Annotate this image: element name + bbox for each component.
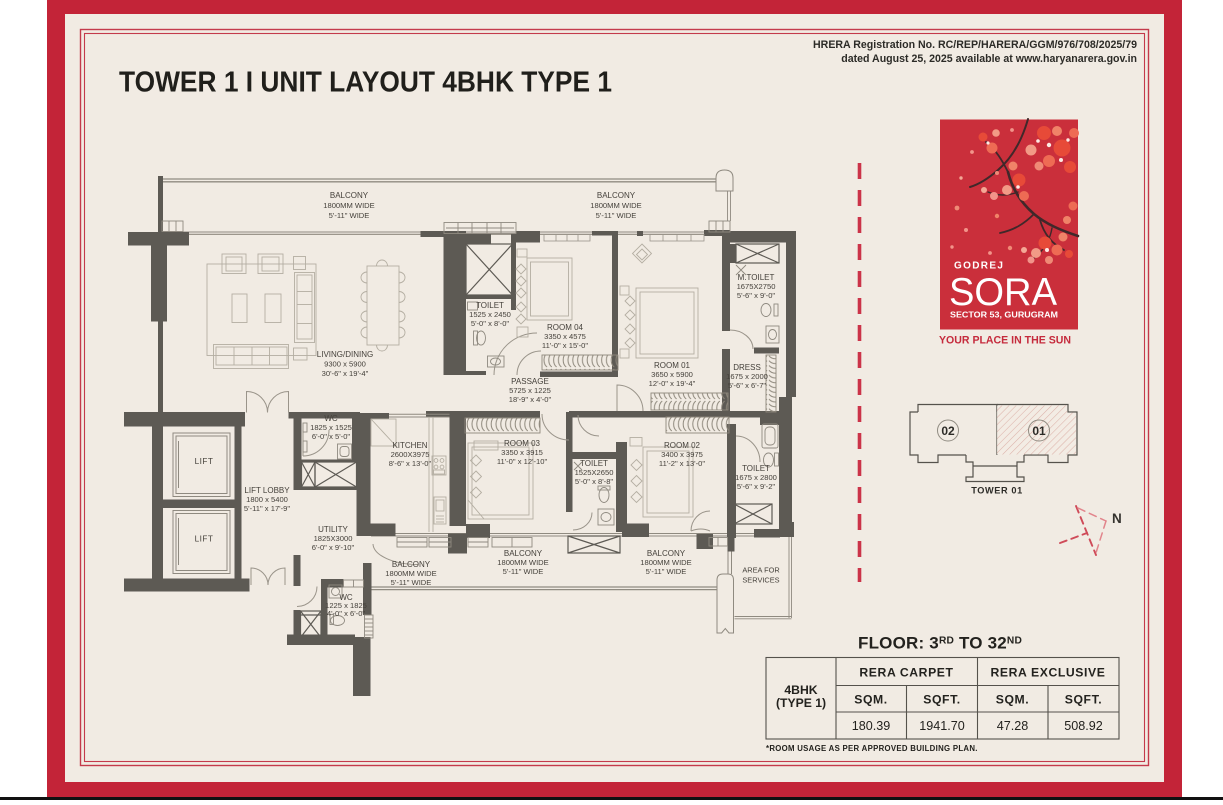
svg-text:PASSAGE: PASSAGE [511,377,549,386]
svg-text:1800 x 5400: 1800 x 5400 [246,495,288,504]
svg-text:LIFT: LIFT [195,535,214,544]
svg-text:3350 x 3915: 3350 x 3915 [501,448,543,457]
svg-text:*ROOM USAGE AS PER APPROVED BU: *ROOM USAGE AS PER APPROVED BUILDING PLA… [766,744,978,753]
svg-text:LIVING/DINING: LIVING/DINING [317,350,373,359]
svg-text:ROOM 04: ROOM 04 [547,323,584,332]
svg-text:6'-0" x 5'-0": 6'-0" x 5'-0" [312,432,351,441]
svg-text:5'-6" x 9'-2": 5'-6" x 9'-2" [737,482,776,491]
svg-text:RERA CARPET: RERA CARPET [859,666,953,680]
svg-text:KITCHEN: KITCHEN [392,441,427,450]
svg-text:1525X2650: 1525X2650 [575,468,614,477]
svg-text:01: 01 [1032,424,1046,438]
svg-text:1941.70: 1941.70 [919,719,965,733]
svg-text:SECTOR 53, GURUGRAM: SECTOR 53, GURUGRAM [950,311,1058,320]
svg-text:TOILET: TOILET [580,459,608,468]
svg-text:BALCONY: BALCONY [504,549,543,558]
svg-text:BALCONY: BALCONY [597,191,636,200]
svg-text:9300 x 5900: 9300 x 5900 [324,360,366,369]
svg-text:1825X3000: 1825X3000 [314,534,353,543]
svg-text:5'-11" x 17'-9": 5'-11" x 17'-9" [244,504,290,513]
svg-text:5'-0" x 8'-0": 5'-0" x 8'-0" [471,319,510,328]
svg-text:WC: WC [324,414,338,423]
svg-text:11'-0" x 12'-10": 11'-0" x 12'-10" [497,457,548,466]
svg-text:SERVICES: SERVICES [742,576,779,585]
svg-text:02: 02 [941,424,955,438]
svg-text:5'-6" x 6'-7": 5'-6" x 6'-7" [728,381,767,390]
svg-text:GODREJ: GODREJ [954,261,1006,272]
svg-text:1800MM WIDE: 1800MM WIDE [323,201,374,210]
svg-text:5'-6" x 9'-0": 5'-6" x 9'-0" [737,291,776,300]
svg-text:30'-6" x 19'-4": 30'-6" x 19'-4" [322,369,369,378]
svg-text:UTILITY: UTILITY [318,525,348,534]
svg-text:12'-0" x 19'-4": 12'-0" x 19'-4" [649,379,696,388]
svg-text:1800MM WIDE: 1800MM WIDE [640,558,691,567]
svg-text:(TYPE 1): (TYPE 1) [776,696,826,710]
svg-text:LIFT LOBBY: LIFT LOBBY [244,486,290,495]
svg-text:TOILET: TOILET [476,301,504,310]
svg-text:11'-2" x 13'-0": 11'-2" x 13'-0" [659,459,705,468]
svg-text:TOILET: TOILET [742,464,770,473]
svg-text:5'-0" x 8'-8": 5'-0" x 8'-8" [575,477,614,486]
svg-text:3650 x 5900: 3650 x 5900 [651,370,693,379]
svg-text:SQM.: SQM. [996,693,1030,707]
svg-text:HRERA Registration No. RC/REP/: HRERA Registration No. RC/REP/HARERA/GGM… [813,39,1137,51]
svg-text:180.39: 180.39 [852,719,891,733]
svg-text:5'-11" WIDE: 5'-11" WIDE [596,211,637,220]
svg-text:5725 x 1225: 5725 x 1225 [509,386,551,395]
svg-text:47.28: 47.28 [997,719,1029,733]
svg-text:SORA: SORA [949,271,1057,314]
svg-text:8'-6" x 13'-0": 8'-6" x 13'-0" [389,459,432,468]
svg-text:BALCONY: BALCONY [392,560,431,569]
svg-text:TOWER 01: TOWER 01 [971,486,1023,496]
svg-text:1675X2750: 1675X2750 [737,282,776,291]
svg-text:BALCONY: BALCONY [647,549,686,558]
svg-text:BALCONY: BALCONY [330,191,369,200]
svg-text:5'-11" WIDE: 5'-11" WIDE [503,567,544,576]
svg-text:M.TOILET: M.TOILET [738,273,775,282]
svg-text:4BHK: 4BHK [784,683,817,697]
svg-text:dated August 25, 2025 availabl: dated August 25, 2025 available at www.h… [841,53,1137,65]
svg-text:YOUR PLACE IN THE SUN: YOUR PLACE IN THE SUN [939,335,1071,347]
svg-text:1675 x 2000: 1675 x 2000 [726,372,768,381]
svg-text:AREA FOR: AREA FOR [742,566,779,575]
svg-text:TOWER 1 I UNIT LAYOUT 4BHK TYP: TOWER 1 I UNIT LAYOUT 4BHK TYPE 1 [119,67,612,99]
svg-text:11'-0" x 15'-0": 11'-0" x 15'-0" [542,341,588,350]
svg-text:5'-11" WIDE: 5'-11" WIDE [646,567,687,576]
svg-text:SQFT.: SQFT. [923,693,961,707]
svg-text:N: N [1112,511,1122,526]
svg-text:ROOM 02: ROOM 02 [664,441,701,450]
svg-text:1825 x 1525: 1825 x 1525 [310,423,352,432]
svg-text:3400 x 3975: 3400 x 3975 [661,450,703,459]
svg-text:SQFT.: SQFT. [1065,693,1103,707]
svg-text:4'-0" x 6'-0": 4'-0" x 6'-0" [327,609,366,618]
svg-text:ROOM 03: ROOM 03 [504,439,541,448]
svg-text:5'-11" WIDE: 5'-11" WIDE [329,211,370,220]
svg-text:2600X3975: 2600X3975 [391,450,430,459]
svg-text:DRESS: DRESS [733,363,761,372]
svg-text:1800MM WIDE: 1800MM WIDE [590,201,641,210]
svg-text:SQM.: SQM. [854,693,888,707]
svg-text:LIFT: LIFT [195,457,214,466]
svg-text:1800MM WIDE: 1800MM WIDE [497,558,548,567]
svg-text:3350 x 4575: 3350 x 4575 [544,332,586,341]
svg-text:ROOM 01: ROOM 01 [654,361,691,370]
svg-text:1800MM WIDE: 1800MM WIDE [385,569,436,578]
svg-text:1525 x 2450: 1525 x 2450 [469,310,511,319]
svg-text:18'-9" x 4'-0": 18'-9" x 4'-0" [509,395,552,404]
svg-text:RERA EXCLUSIVE: RERA EXCLUSIVE [991,666,1106,680]
svg-text:6'-0" x 9'-10": 6'-0" x 9'-10" [312,543,355,552]
svg-text:508.92: 508.92 [1064,719,1103,733]
svg-text:1675 x 2800: 1675 x 2800 [735,473,777,482]
svg-text:5'-11" WIDE: 5'-11" WIDE [391,578,432,587]
